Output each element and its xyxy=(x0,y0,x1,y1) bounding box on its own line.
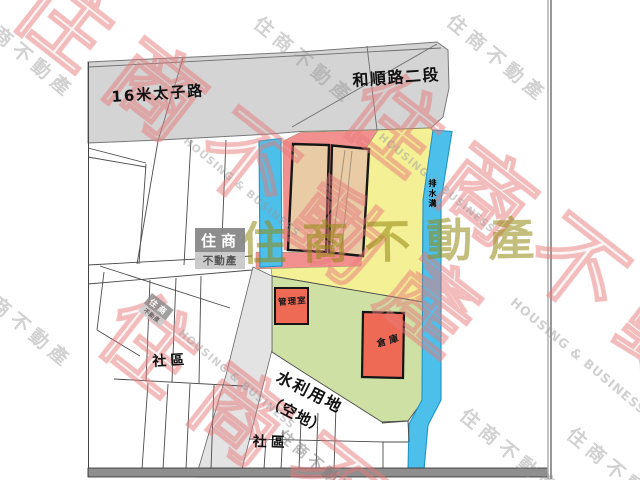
management-label: 管理室 xyxy=(278,297,307,307)
community-label-1: 社區 xyxy=(152,353,189,369)
brand-logo-top: 住商 xyxy=(195,228,245,252)
cadastral-map: 16米太子路 和順路二段 排水溝 管理室 倉庫 社區 水利用地 （空地） 社區 … xyxy=(0,0,640,480)
drain-label: 排水溝 xyxy=(428,179,436,209)
brand-logo: 住商 不動產 xyxy=(195,228,245,269)
community-label-2: 社區 xyxy=(253,435,289,450)
brand-logo-bottom: 不動產 xyxy=(195,252,245,269)
